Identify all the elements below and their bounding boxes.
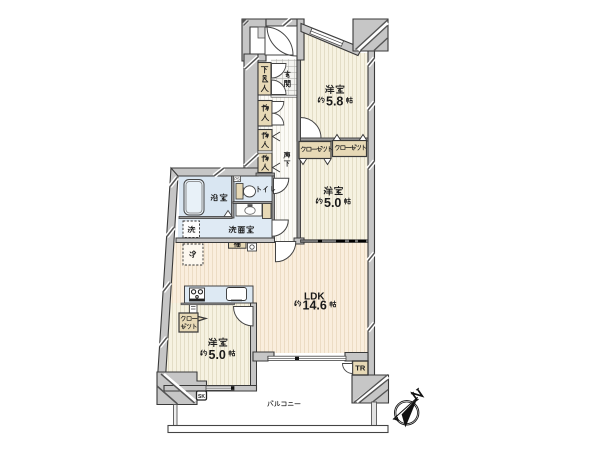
svg-text:TR: TR [355, 364, 366, 373]
svg-text:5.0: 5.0 [324, 196, 341, 210]
svg-text:PS: PS [234, 176, 240, 181]
svg-text:SK: SK [198, 394, 205, 400]
svg-text:14.6: 14.6 [303, 298, 327, 312]
svg-text:5.8: 5.8 [326, 95, 343, 109]
svg-text:5.0: 5.0 [209, 348, 226, 362]
